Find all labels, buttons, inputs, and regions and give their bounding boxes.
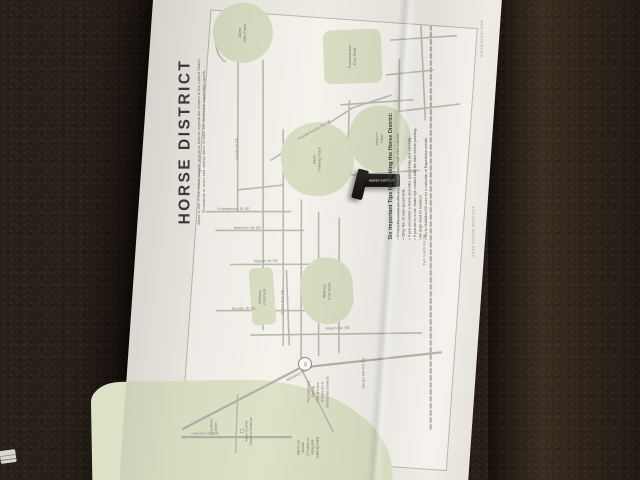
street-label-marlboro: Marlboro St SE xyxy=(234,225,261,230)
road xyxy=(238,182,283,193)
tip-item: Go to VisitAikenSC.com for a calendar of… xyxy=(423,90,429,240)
street-label-sumter: Sumter St SE xyxy=(232,306,256,311)
map-subtitle-line1: Aiken is one of the oldest, largest, and… xyxy=(197,51,202,231)
street-label-union: Union St SE xyxy=(235,138,240,160)
venue-label: Field xyxy=(380,132,385,145)
venue-label: Mile Track xyxy=(243,24,248,42)
tips-heading: Six Important Tips for Visiting the Hors… xyxy=(387,90,393,240)
venue-powderhouse-polo-field: Powderhouse Polo Field xyxy=(323,29,383,85)
road xyxy=(391,31,456,45)
landmark-hopelands-gardens: Thoroughbred Racing Hall of Fame & Museu… xyxy=(306,376,330,407)
museum-icon xyxy=(240,429,244,433)
street-label-banks-mill: Banks Mill Rd SE xyxy=(361,358,366,389)
route-shield-number: 19 xyxy=(303,362,308,366)
street-label-orangeburg: Orangeburg St SE xyxy=(217,206,250,211)
road xyxy=(386,67,432,78)
carpet-tag xyxy=(0,449,17,464)
folded-map-sheet: Aiken Mile Track Powderhouse Polo Field … xyxy=(118,0,502,480)
website-note: VISITAIKENSC.COM xyxy=(481,20,484,57)
venue-winthrop-polo-field: Winthrop Polo Field xyxy=(249,267,277,326)
map-title: HORSE DISTRICT xyxy=(176,51,194,231)
street-label-mead: Mead Ave SE xyxy=(325,325,349,330)
venue-label: Training Track xyxy=(317,147,322,171)
scene: Aiken Mile Track Powderhouse Polo Field … xyxy=(0,0,640,480)
venue-label: Polo Field xyxy=(353,45,358,69)
edition-note: AIKEN VISITOR MAPS 2025 xyxy=(472,206,475,257)
street-label-grace: Grace Ave SE xyxy=(280,290,285,315)
landmark-historical-museum: Aiken County Historical Museum xyxy=(240,417,254,446)
hitchcock-woods-label: Hitchcock Woods (70 miles of riding and … xyxy=(296,437,320,458)
landmark-downtown-aiken: Downtown Aiken xyxy=(210,419,219,435)
street-label-marion: Marion St SE xyxy=(254,259,278,264)
venue-label: Polo Field xyxy=(327,282,332,299)
venue-whitney-polo-field: Whitney Polo Field xyxy=(299,256,356,326)
map-subtitle-line2: Thousands of acres and nearby miles of t… xyxy=(202,51,207,231)
venue-label: Polo Field xyxy=(263,289,268,305)
road xyxy=(234,395,240,453)
carpet-pile-highlight xyxy=(488,0,640,480)
